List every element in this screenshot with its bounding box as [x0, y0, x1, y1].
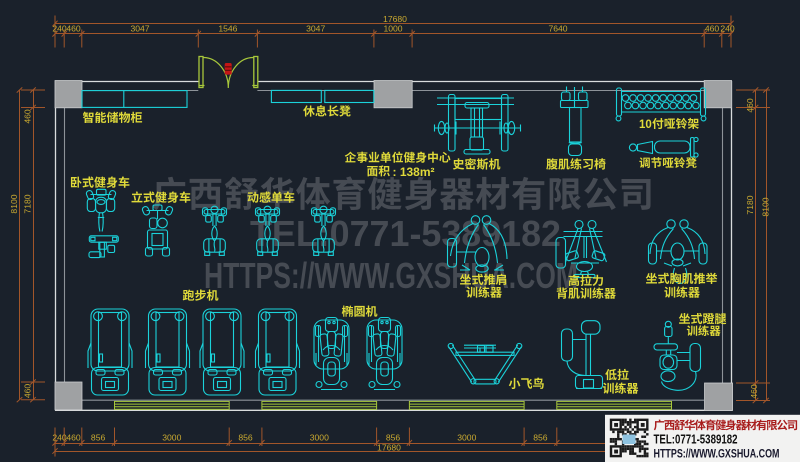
svg-text:HTTPS://WWW.GXSHUA.COM: HTTPS://WWW.GXSHUA.COM [654, 446, 780, 460]
svg-text:460: 460 [745, 98, 755, 113]
svg-text:17680: 17680 [383, 14, 407, 24]
svg-text:240: 240 [52, 433, 67, 443]
svg-text:856: 856 [386, 433, 401, 443]
svg-text:17680: 17680 [377, 442, 401, 452]
svg-text:: 138m²: : 138m² [393, 165, 435, 179]
svg-text:3000: 3000 [310, 433, 329, 443]
svg-text:460: 460 [749, 384, 759, 399]
svg-text:10: 10 [639, 119, 652, 131]
svg-text:7180: 7180 [745, 195, 755, 214]
svg-text:8100: 8100 [9, 194, 19, 213]
svg-text:3000: 3000 [457, 433, 476, 443]
svg-text:460: 460 [23, 109, 33, 124]
svg-text:460: 460 [23, 384, 33, 399]
svg-text:3047: 3047 [306, 24, 325, 34]
svg-text:7640: 7640 [548, 24, 567, 34]
svg-text:240: 240 [720, 24, 735, 34]
svg-text:856: 856 [91, 433, 106, 443]
svg-text:460: 460 [705, 24, 720, 34]
svg-text:TEL:0771-5389182: TEL:0771-5389182 [654, 433, 738, 447]
svg-text:3047: 3047 [130, 24, 149, 34]
svg-text:7180: 7180 [23, 194, 33, 213]
svg-text:TEL:0771-5389182: TEL:0771-5389182 [250, 213, 561, 254]
svg-text:240: 240 [52, 24, 67, 34]
svg-text:460: 460 [66, 433, 81, 443]
svg-text:460: 460 [66, 24, 81, 34]
svg-text:HTTPS://WWW.GXSHUA.COM: HTTPS://WWW.GXSHUA.COM [204, 255, 578, 296]
svg-text:8100: 8100 [761, 197, 771, 216]
svg-text:1000: 1000 [383, 24, 402, 34]
svg-text:856: 856 [238, 433, 253, 443]
svg-text:856: 856 [533, 433, 548, 443]
svg-text:3000: 3000 [162, 433, 181, 443]
svg-text:1546: 1546 [218, 24, 237, 34]
